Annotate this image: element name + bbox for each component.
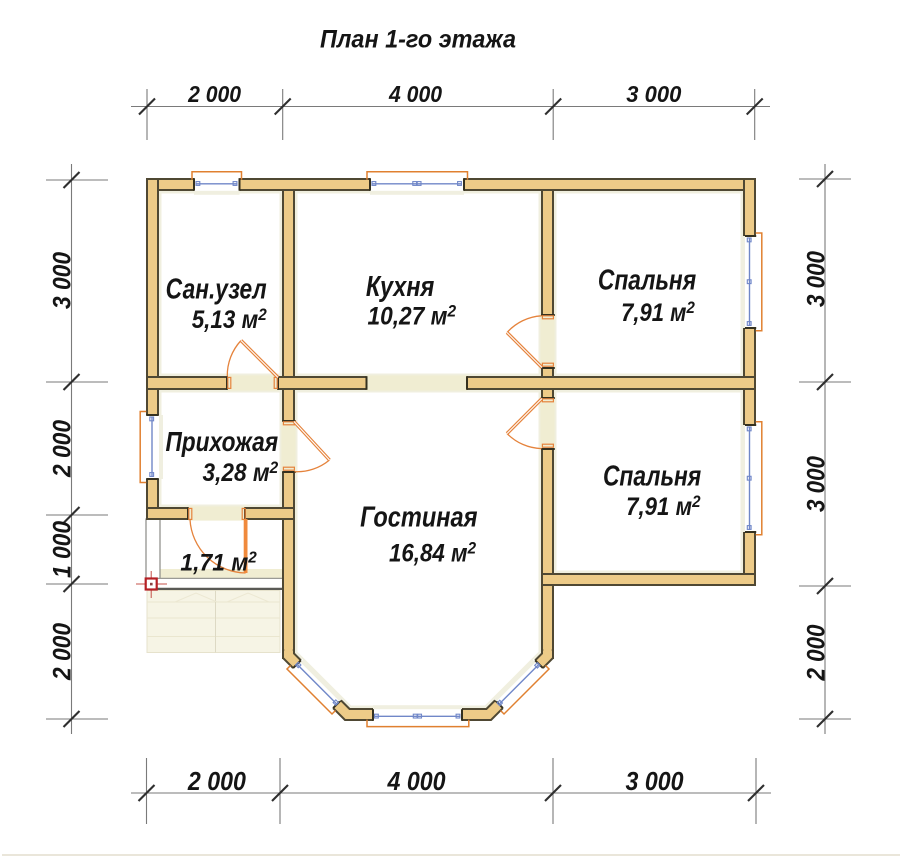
svg-text:5,13 м2: 5,13 м2 [192, 305, 267, 334]
svg-text:4 000: 4 000 [387, 766, 446, 796]
svg-text:3 000: 3 000 [49, 252, 77, 309]
svg-text:3 000: 3 000 [803, 251, 831, 307]
svg-text:3 000: 3 000 [626, 766, 684, 796]
svg-text:7,91 м2: 7,91 м2 [621, 298, 695, 327]
svg-text:Спальня: Спальня [598, 265, 696, 297]
svg-text:3,28 м2: 3,28 м2 [203, 458, 279, 487]
svg-text:10,27 м2: 10,27 м2 [367, 302, 456, 331]
svg-text:Сан.узел: Сан.узел [166, 274, 267, 306]
svg-text:1 000: 1 000 [49, 521, 77, 578]
svg-text:Гостиная: Гостиная [360, 501, 477, 533]
svg-text:16,84 м2: 16,84 м2 [389, 538, 477, 567]
svg-text:3 000: 3 000 [803, 456, 831, 512]
svg-text:Кухня: Кухня [366, 271, 434, 303]
svg-text:2 000: 2 000 [49, 420, 77, 478]
svg-text:7,91 м2: 7,91 м2 [626, 492, 701, 521]
svg-text:3 000: 3 000 [626, 81, 681, 107]
svg-text:2 000: 2 000 [803, 624, 831, 681]
svg-text:2 000: 2 000 [187, 81, 241, 107]
svg-text:1,71 м2: 1,71 м2 [180, 550, 256, 577]
svg-text:План 1-го этажа: План 1-го этажа [320, 26, 516, 54]
svg-text:2 000: 2 000 [49, 623, 77, 681]
svg-text:4 000: 4 000 [388, 81, 442, 107]
svg-text:2 000: 2 000 [187, 766, 246, 796]
svg-text:Спальня: Спальня [603, 460, 701, 492]
svg-text:Прихожая: Прихожая [165, 426, 278, 457]
